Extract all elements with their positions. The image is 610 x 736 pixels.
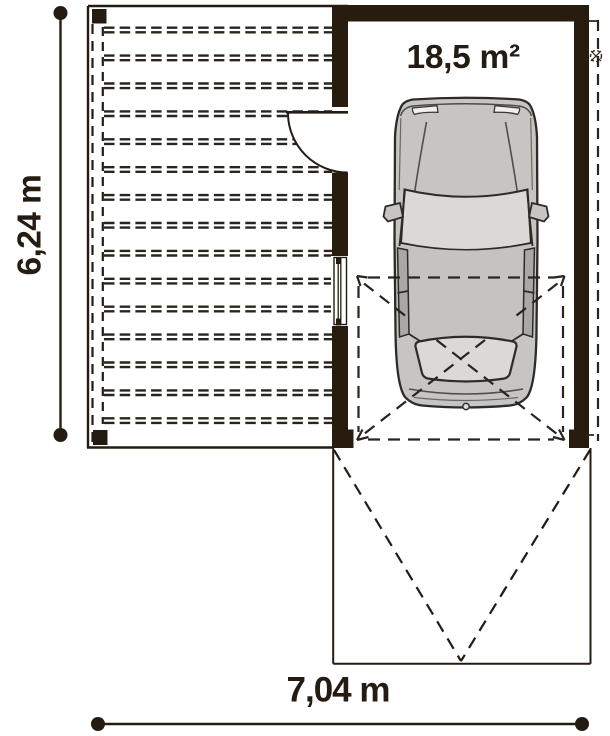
svg-text:7,04 m: 7,04 m (287, 671, 390, 710)
svg-text:18,5 m²: 18,5 m² (407, 39, 520, 76)
svg-text:6,24 m: 6,24 m (12, 175, 49, 276)
